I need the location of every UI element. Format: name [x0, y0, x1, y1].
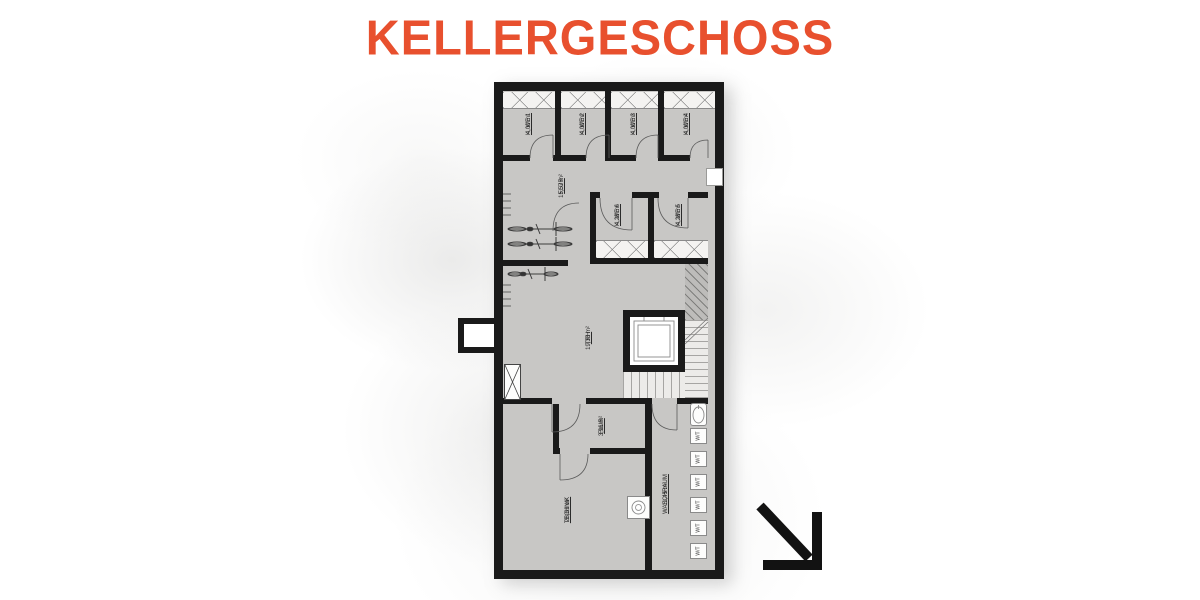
bicycle-icons: [508, 222, 572, 281]
boiler-circle: [632, 501, 645, 514]
door-swing-arcs: [530, 135, 708, 480]
elevator-icon: [634, 317, 674, 361]
x-bracing: [505, 365, 520, 399]
page-title: KELLERGESCHOSS: [0, 9, 1200, 66]
page: KELLERGESCHOSS: [0, 0, 1200, 600]
bike-rack-ticks: [503, 194, 511, 306]
sink-basin: [693, 405, 704, 423]
light-well-protrusion: [458, 318, 503, 353]
light-well-interior: [464, 324, 494, 347]
direction-arrow-icon: [755, 500, 830, 580]
stair-cut-line: [685, 318, 708, 344]
floor-plan: W/T W/T W/T W/T W/T W/T: [494, 82, 724, 579]
plan-detail-overlay: [494, 82, 724, 579]
